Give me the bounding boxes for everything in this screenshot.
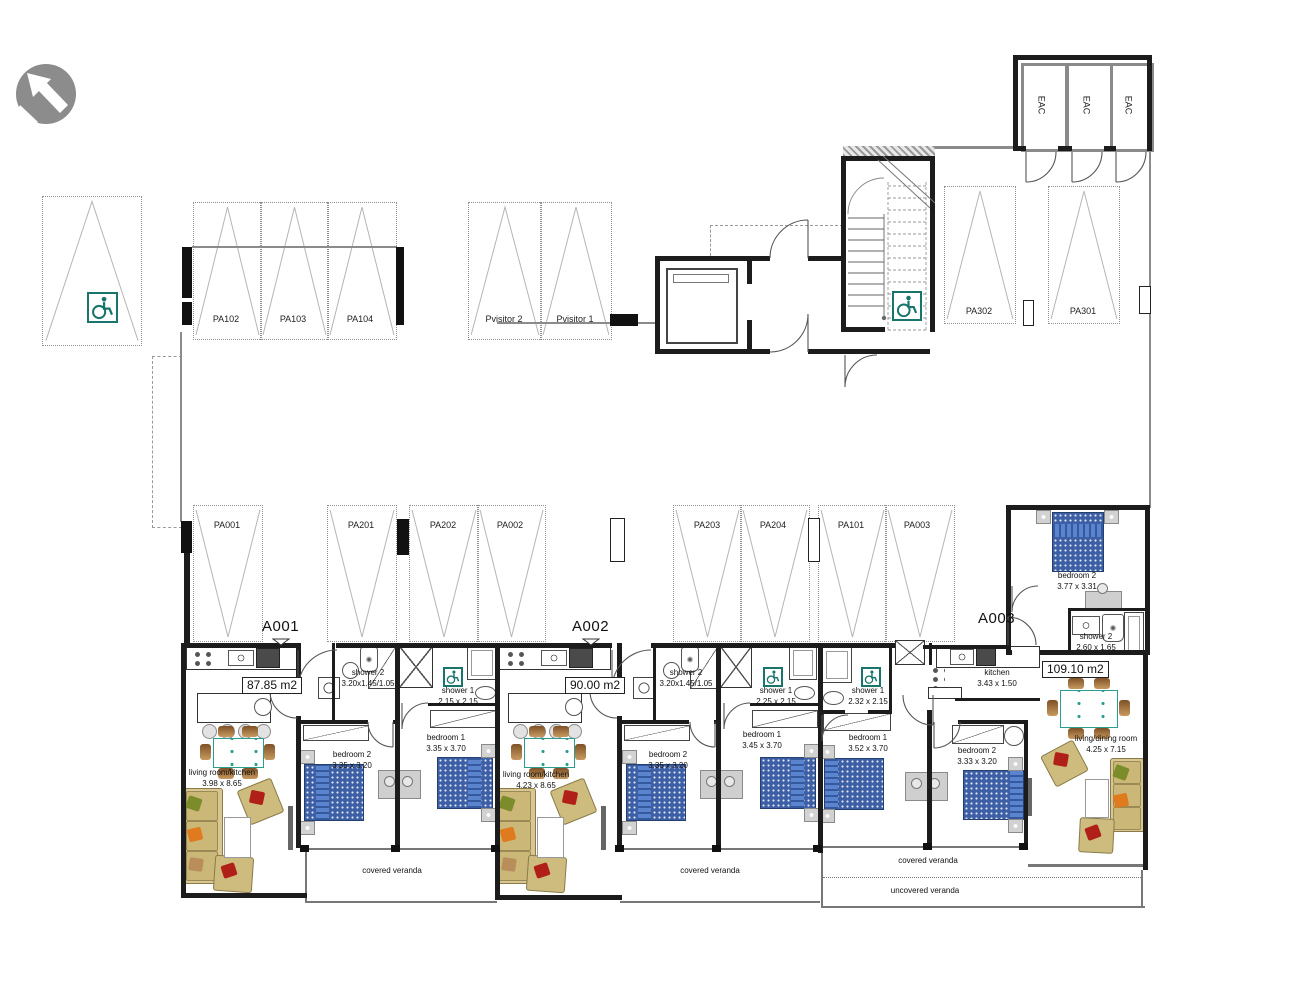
parking-label-pa101: PA101	[838, 520, 864, 530]
stool	[513, 724, 528, 739]
chair	[242, 726, 258, 737]
parking-label-pa001: PA001	[214, 520, 240, 530]
parking-label-pa003: PA003	[904, 520, 930, 530]
room-label-a002-bedroom2: bedroom 23.35 x 3.20	[648, 750, 688, 772]
wall	[655, 256, 752, 261]
room-label-a002-living: living room/kitchen4.23 x 8.65	[503, 770, 569, 792]
wall	[752, 256, 770, 261]
stairs	[848, 178, 886, 320]
veranda-wall	[821, 848, 823, 908]
column	[491, 845, 500, 852]
bed	[304, 764, 364, 821]
wall	[930, 156, 935, 332]
knob	[402, 776, 413, 787]
wall	[655, 349, 752, 354]
wall	[1006, 505, 1011, 655]
wall	[181, 893, 307, 898]
washbasin-icon	[1004, 726, 1024, 746]
room-label-a001-living: living room/kitchen3.98 x 8.65	[189, 768, 255, 790]
nightstand	[481, 744, 496, 758]
column	[1023, 300, 1034, 326]
wardrobe	[823, 713, 891, 731]
tv	[601, 806, 606, 850]
nightstand	[1104, 510, 1119, 524]
wheelchair-icon	[763, 667, 783, 687]
studio-logo	[14, 62, 78, 126]
line	[180, 332, 182, 522]
parking-label-pa201: PA201	[348, 520, 374, 530]
wall	[1006, 505, 1150, 510]
entrance-marker-a002	[582, 638, 600, 646]
room-label-a003-bedroom1: bedroom 13.52 x 3.70	[848, 733, 888, 755]
parking-label-pa102: PA102	[213, 314, 239, 324]
floor-plan: PA102 PA103 PA104 Pvisitor 2 Pvisitor 1 …	[0, 0, 1308, 981]
wheelchair-icon	[861, 667, 881, 687]
stove-icon	[503, 649, 527, 666]
wall	[651, 643, 821, 648]
room-label-a001-veranda: covered veranda	[362, 866, 422, 877]
wall	[296, 716, 301, 848]
chair	[1094, 678, 1110, 689]
wall	[923, 645, 1008, 649]
parking-label-pa002: PA002	[497, 520, 523, 530]
wall	[1147, 55, 1152, 151]
stove-icon	[928, 665, 945, 687]
wall	[332, 643, 335, 720]
entrance-marker-a001	[272, 638, 290, 646]
knob	[911, 778, 922, 789]
duct-shaft	[720, 646, 752, 688]
nightstand	[300, 821, 315, 835]
room-label-a001-shower1: shower 12.15 x 2.15	[438, 686, 478, 708]
duct-shaft	[399, 646, 433, 688]
apartment-label-a001: A001	[262, 618, 299, 635]
wall	[184, 553, 190, 645]
area-label-a003: 109.10 m2	[1042, 661, 1109, 678]
chair	[511, 744, 522, 760]
shower-tray	[822, 647, 852, 683]
arrow-logo-icon	[14, 62, 78, 126]
wall	[1143, 655, 1148, 870]
stove-icon	[190, 649, 214, 666]
washing-machine	[318, 677, 340, 699]
bed-pillow	[1010, 771, 1023, 819]
chair	[218, 726, 234, 737]
elevator-door	[673, 274, 729, 283]
bed-pillow	[791, 758, 804, 808]
column	[615, 845, 624, 852]
room-label-a003-covered-veranda: covered veranda	[898, 856, 958, 867]
nightstand	[1036, 510, 1051, 524]
washbasin-icon	[794, 686, 815, 700]
parking-stall-pa301	[1048, 186, 1120, 324]
column	[182, 302, 192, 325]
shower-tray	[789, 646, 817, 680]
knob	[384, 776, 395, 787]
chair	[264, 744, 275, 760]
island-sink-icon	[254, 698, 272, 716]
parking-label-pa103: PA103	[280, 314, 306, 324]
storage-label-eac3: EAC	[1123, 96, 1133, 115]
dashed-line	[710, 225, 711, 256]
wall	[1058, 146, 1072, 151]
room-label-a003-bedroom2-annex: bedroom 23.77 x 3.31	[1057, 571, 1097, 593]
bed	[760, 757, 816, 809]
bed	[1052, 512, 1104, 572]
refrigerator	[569, 648, 593, 668]
duct-shaft	[895, 640, 925, 665]
nightstand	[481, 808, 496, 822]
throw-pillow	[501, 857, 517, 872]
dashed-line	[710, 225, 843, 226]
bed	[626, 764, 686, 821]
shower-tray	[467, 646, 497, 680]
wall	[181, 643, 186, 898]
wall	[1013, 55, 1152, 60]
knob	[724, 776, 735, 787]
bed	[437, 757, 493, 809]
bed-pillow	[316, 765, 329, 820]
washing-machine	[633, 677, 655, 699]
wall	[653, 643, 656, 720]
room-label-a002-veranda: covered veranda	[680, 866, 740, 877]
parking-label-pvisitor2: Pvisitor 2	[485, 314, 522, 324]
wall	[955, 698, 1040, 701]
knob	[1097, 583, 1108, 594]
apartment-label-a003: A003	[978, 610, 1015, 627]
bed	[824, 758, 884, 810]
dining-table	[1060, 690, 1118, 728]
wall	[617, 716, 622, 848]
chair	[1119, 700, 1130, 716]
column	[396, 247, 404, 325]
sink-icon	[541, 650, 567, 666]
dashed-line	[152, 356, 182, 528]
throw-pillow	[1053, 752, 1069, 767]
wheelchair-icon	[87, 292, 118, 323]
stool	[256, 724, 271, 739]
wall	[622, 720, 689, 724]
wall	[841, 327, 885, 332]
wall	[1013, 55, 1018, 151]
wall	[868, 710, 892, 714]
wall	[1068, 608, 1145, 611]
wall	[1006, 650, 1012, 655]
wall	[841, 156, 846, 332]
wardrobe	[430, 710, 496, 728]
parking-label-pa203: PA203	[694, 520, 720, 530]
area-label-a001: 87.85 m2	[242, 677, 302, 694]
nightstand	[1008, 757, 1023, 771]
bed-pillow	[1053, 524, 1103, 537]
column	[397, 519, 409, 555]
tv	[288, 806, 293, 850]
veranda-wall	[305, 901, 497, 903]
room-label-a003-uncovered-veranda: uncovered veranda	[891, 886, 960, 897]
chair	[1068, 678, 1084, 689]
room-label-a001-shower2: shower 23.20x1.45/1.05	[342, 668, 395, 690]
dining-table	[213, 738, 264, 768]
nightstand	[622, 750, 637, 764]
nightstand	[1008, 819, 1023, 833]
wall	[818, 643, 823, 853]
area-label-a002: 90.00 m2	[565, 677, 625, 694]
wheelchair-icon	[892, 291, 922, 321]
coffee-table	[537, 817, 564, 858]
stair-landing-hatch	[843, 146, 935, 156]
room-label-a001-bedroom1: bedroom 13.35 x 3.70	[426, 733, 466, 755]
chair	[529, 726, 545, 737]
dining-table	[524, 738, 575, 768]
column	[813, 845, 822, 852]
wardrobe	[303, 725, 369, 741]
throw-pillow	[188, 857, 204, 872]
column	[610, 518, 625, 562]
stool	[202, 724, 217, 739]
chair	[200, 744, 211, 760]
parking-label-pvisitor1: Pvisitor 1	[556, 314, 593, 324]
column	[1019, 843, 1028, 850]
wall	[808, 256, 841, 261]
coffee-table	[224, 817, 251, 858]
parking-label-pa202: PA202	[430, 520, 456, 530]
bed-pillow	[825, 759, 838, 809]
nightstand	[622, 821, 637, 835]
veranda-wall	[307, 848, 497, 850]
wall	[958, 720, 1028, 724]
wall	[929, 643, 932, 665]
bed-pillow	[468, 758, 481, 808]
throw-pillow	[249, 790, 265, 806]
room-label-a003-shower2-annex: shower 22.60 x 1.65	[1076, 632, 1116, 654]
room-label-a003-bedroom2: bedroom 23.33 x 3.20	[957, 746, 997, 768]
wall	[889, 643, 892, 710]
nightstand	[804, 808, 819, 822]
sink-icon	[228, 650, 254, 666]
chair	[1047, 700, 1058, 716]
wall	[1013, 146, 1026, 151]
parking-label-pa204: PA204	[760, 520, 786, 530]
column	[182, 247, 192, 298]
parking-stall-accessible	[42, 196, 142, 346]
parking-label-pa302: PA302	[966, 306, 992, 316]
nightstand	[804, 744, 819, 758]
room-label-a003-living: living/dining room4.25 x 7.15	[1075, 734, 1137, 756]
column	[300, 845, 309, 852]
nightstand	[300, 750, 315, 764]
room-label-a002-shower2: shower 23.20x1.45/1.05	[660, 668, 713, 690]
wardrobe	[752, 710, 818, 728]
wall	[395, 643, 400, 848]
room-label-a003-kitchen: kitchen3.43 x 1.50	[977, 668, 1017, 690]
refrigerator	[976, 647, 996, 666]
line	[935, 146, 1015, 149]
bed-pillow	[638, 765, 651, 820]
wall	[1104, 146, 1116, 151]
column	[712, 845, 721, 852]
parking-stall-pa302	[944, 186, 1016, 324]
line	[1149, 151, 1151, 508]
dashed-line	[823, 877, 1143, 878]
throw-pillow	[562, 790, 578, 806]
room-label-a002-bedroom1: bedroom 13.45 x 3.70	[742, 730, 782, 752]
room-label-a002-shower1: shower 12.25 x 2.15	[756, 686, 796, 708]
veranda-wall	[1141, 870, 1143, 908]
bed	[963, 770, 1024, 820]
wall	[752, 349, 770, 354]
sofa-cushion	[1113, 807, 1141, 830]
column	[610, 314, 638, 326]
apartment-label-a002: A002	[572, 618, 609, 635]
wall	[655, 256, 660, 354]
column	[923, 843, 932, 850]
wall	[495, 895, 622, 900]
island-sink-icon	[565, 698, 583, 716]
stool	[567, 724, 582, 739]
wall	[336, 643, 612, 648]
wall	[1024, 720, 1028, 850]
column	[808, 518, 820, 562]
wall	[301, 720, 368, 724]
wall	[1145, 505, 1150, 655]
wall	[808, 349, 930, 354]
storage-label-eac1: EAC	[1036, 96, 1046, 115]
column	[181, 521, 192, 553]
coffee-table	[1085, 779, 1109, 818]
wheelchair-icon	[443, 667, 463, 687]
chair	[553, 726, 569, 737]
veranda-wall	[821, 906, 1145, 908]
parking-label-pa301: PA301	[1070, 306, 1096, 316]
washbasin-icon	[823, 691, 844, 705]
chair	[575, 744, 586, 760]
wardrobe	[624, 725, 690, 741]
wardrobe	[952, 725, 1004, 744]
wall	[841, 156, 935, 161]
veranda-wall	[1028, 864, 1145, 867]
line	[192, 246, 397, 248]
wall	[927, 710, 932, 850]
column	[391, 845, 400, 852]
refrigerator	[256, 648, 280, 668]
wall	[1068, 611, 1071, 655]
wall	[821, 643, 895, 648]
wall	[821, 710, 845, 714]
shower-tray	[1124, 612, 1144, 655]
column	[1139, 286, 1151, 314]
storage-label-eac2: EAC	[1081, 96, 1091, 115]
room-label-a003-shower1: shower 12.32 x 2.15	[848, 686, 888, 708]
room-label-a001-bedroom2: bedroom 23.35 x 3.20	[332, 750, 372, 772]
sink-icon	[950, 649, 974, 665]
wall	[716, 643, 721, 848]
veranda-wall	[620, 901, 820, 903]
wall	[495, 643, 500, 900]
parking-label-pa104: PA104	[347, 314, 373, 324]
